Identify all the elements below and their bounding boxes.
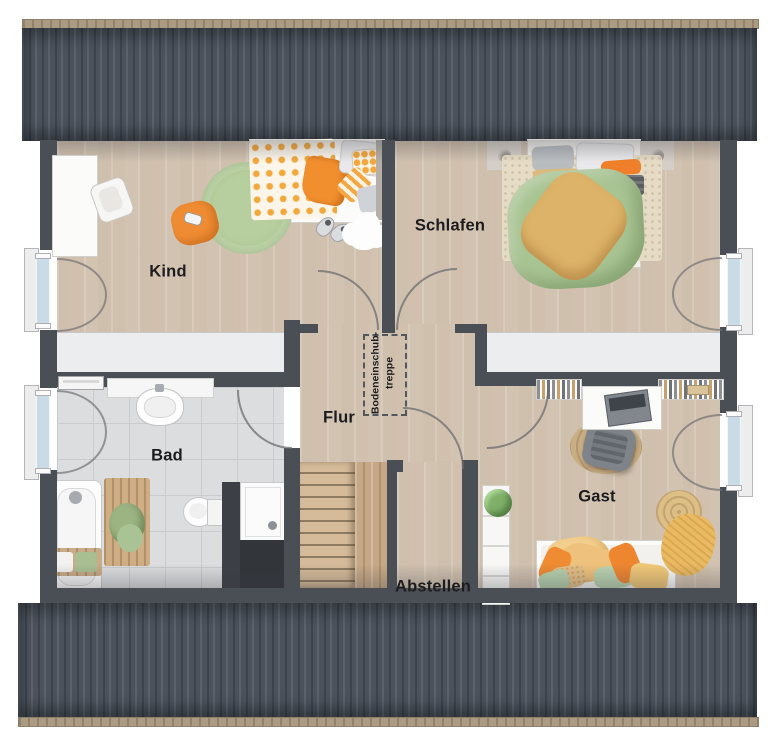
staircase xyxy=(300,462,355,588)
gast-laptop xyxy=(604,389,652,427)
wall-bad-right-lower xyxy=(284,448,300,588)
kind-desk xyxy=(52,155,98,257)
shower-partition-wall xyxy=(222,482,240,588)
room-label-abstellen: Abstellen xyxy=(395,578,471,597)
window-right-1 xyxy=(727,255,741,329)
wall-abstellen-left xyxy=(387,460,397,588)
room-label-gast: Gast xyxy=(578,488,615,507)
wall-right-lower xyxy=(720,487,737,588)
wall-abstellen-top xyxy=(387,460,403,472)
roof-top xyxy=(22,28,757,141)
room-label-bad: Bad xyxy=(151,447,183,466)
wall-kind-schlafen xyxy=(382,140,395,333)
room-abstellen-floor xyxy=(397,462,462,588)
towel-rail xyxy=(58,376,104,390)
schlafen-blanket-tan xyxy=(510,167,638,291)
shower-dark-corner xyxy=(240,540,284,588)
wall-bad-right-upper xyxy=(284,320,300,387)
wall-right-mid xyxy=(720,327,737,413)
schlafen-wardrobe xyxy=(482,332,722,375)
toy-plane xyxy=(184,212,202,225)
kind-wardrobe xyxy=(52,332,290,375)
towel-green xyxy=(75,552,97,572)
toilet-tank xyxy=(207,499,223,526)
wall-abstellen-right xyxy=(462,460,478,588)
shower-tray xyxy=(240,482,286,542)
potted-plant xyxy=(484,489,512,517)
sink-faucet xyxy=(155,384,164,392)
shower-fixture xyxy=(268,521,277,530)
schlafen-duvet xyxy=(505,167,647,292)
wall-right-upper xyxy=(720,140,737,255)
roof-bottom xyxy=(18,603,757,717)
roof-ridge-bottom xyxy=(18,717,759,727)
bathtub xyxy=(51,480,102,593)
window-left-1 xyxy=(36,255,50,327)
room-label-kind: Kind xyxy=(149,263,186,282)
wall-flur-top-left xyxy=(300,324,318,333)
wall-bottom xyxy=(40,588,737,603)
bookshelf-right xyxy=(658,379,724,400)
sink-basin xyxy=(136,388,184,426)
stair-partition-wall xyxy=(355,462,387,588)
wall-left-lower xyxy=(40,470,57,588)
schlafen-pillow-gray xyxy=(531,145,574,171)
floorplan-image: Bodeneinschub- treppe Kind Schlafen Bad … xyxy=(0,0,775,747)
window-left-2 xyxy=(36,392,50,472)
window-right-2 xyxy=(727,413,741,489)
bath-towel-pile-2 xyxy=(117,524,143,552)
room-label-flur: Flur xyxy=(323,409,355,428)
loft-hatch-label: Bodeneinschub- treppe xyxy=(369,332,396,414)
tub-faucet xyxy=(69,491,82,504)
book-stack xyxy=(687,385,709,395)
room-label-schlafen: Schlafen xyxy=(415,217,485,236)
